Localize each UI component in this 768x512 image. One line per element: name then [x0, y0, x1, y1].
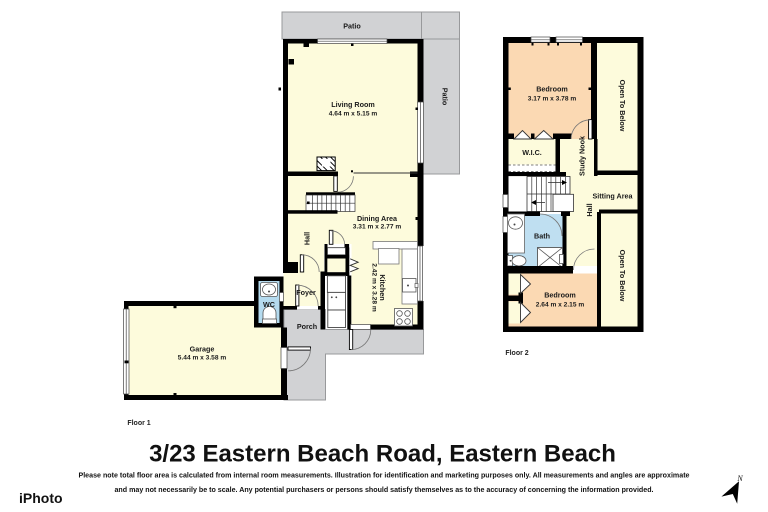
svg-text:Bedroom: Bedroom	[544, 291, 576, 300]
svg-text:Hall: Hall	[585, 203, 594, 216]
svg-text:5.44 m x 3.58 m: 5.44 m x 3.58 m	[178, 354, 227, 361]
svg-text:N: N	[736, 474, 743, 483]
svg-text:3.31 m x 2.77 m: 3.31 m x 2.77 m	[353, 224, 402, 231]
svg-text:Foyer: Foyer	[296, 288, 316, 297]
svg-text:Garage: Garage	[190, 345, 215, 354]
svg-text:Floor 2: Floor 2	[505, 350, 528, 357]
svg-text:2.42 m x 3.28 m: 2.42 m x 3.28 m	[370, 263, 377, 312]
svg-text:Sitting Area: Sitting Area	[592, 192, 633, 201]
svg-text:Kitchen: Kitchen	[378, 274, 387, 300]
svg-text:4.64 m x 5.15 m: 4.64 m x 5.15 m	[329, 110, 378, 117]
svg-text:Patio: Patio	[441, 88, 450, 106]
svg-text:iPhoto: iPhoto	[19, 490, 63, 506]
svg-text:W.I.C.: W.I.C.	[522, 148, 542, 157]
svg-text:Hall: Hall	[303, 232, 312, 245]
svg-text:3.17 m x 3.78 m: 3.17 m x 3.78 m	[528, 96, 577, 103]
svg-text:WC: WC	[263, 300, 275, 309]
svg-text:Dining Area: Dining Area	[357, 214, 398, 223]
svg-text:Porch: Porch	[297, 322, 317, 331]
svg-text:Living Room: Living Room	[331, 100, 375, 109]
svg-text:Patio: Patio	[343, 22, 361, 31]
svg-text:Floor 1: Floor 1	[127, 420, 150, 427]
svg-text:3/23 Eastern Beach Road, Easte: 3/23 Eastern Beach Road, Eastern Beach	[149, 441, 616, 468]
svg-text:Study Nook: Study Nook	[578, 136, 587, 176]
svg-text:2.64 m x 2.15 m: 2.64 m x 2.15 m	[536, 302, 585, 309]
svg-text:Please note total floor area i: Please note total floor area is calculat…	[78, 472, 689, 480]
svg-text:Bath: Bath	[534, 232, 550, 241]
svg-text:Open To Below: Open To Below	[618, 80, 627, 132]
svg-text:Bedroom: Bedroom	[536, 85, 568, 94]
svg-text:and may not necessarily be to: and may not necessarily be to scale. Any…	[114, 486, 653, 494]
svg-text:Open To Below: Open To Below	[618, 250, 627, 302]
